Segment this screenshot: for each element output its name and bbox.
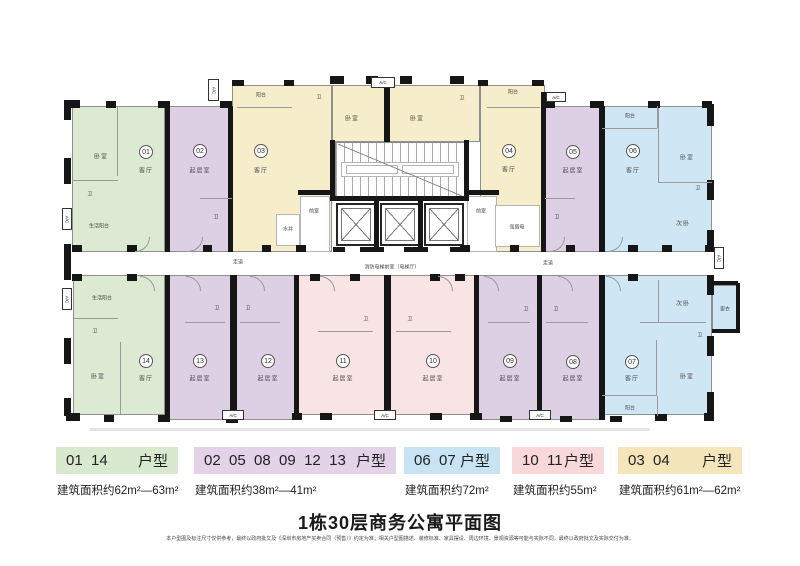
wall-segment bbox=[707, 275, 714, 295]
elevator-x-mark bbox=[341, 208, 371, 241]
room-label: 生活阳台 bbox=[89, 223, 109, 230]
wall-segment bbox=[736, 283, 740, 333]
ac-platform-label: A/C bbox=[222, 410, 244, 420]
room-label: 客厅 bbox=[139, 166, 153, 175]
legend-pill: 02 05 08 09 12 13 户型 bbox=[194, 447, 396, 474]
wall-segment bbox=[532, 80, 544, 86]
wall-segment bbox=[350, 274, 360, 281]
room-label: 次卧 bbox=[676, 219, 690, 228]
room-label: 卧室 bbox=[91, 372, 105, 381]
legend-area-text: 建筑面积约61m²—62m² bbox=[618, 482, 742, 498]
room-label: 卫 bbox=[316, 94, 321, 101]
legend-pill: 10 11 户型 bbox=[512, 447, 604, 474]
room-label: 卫 bbox=[213, 214, 218, 221]
wall-segment bbox=[232, 80, 244, 86]
partition-line bbox=[72, 180, 118, 181]
legend-unit-numbers: 01 14 bbox=[66, 452, 108, 469]
room-label: 卫 bbox=[363, 316, 368, 323]
wall-segment bbox=[66, 413, 80, 421]
ac-text: A/C bbox=[381, 413, 389, 418]
wall-segment bbox=[127, 274, 137, 281]
ac-platform-label: A/C bbox=[546, 92, 566, 102]
partition-line bbox=[185, 322, 225, 323]
room-label: 起居室 bbox=[562, 374, 583, 383]
wall-segment bbox=[384, 275, 391, 415]
legend-unit-numbers: 02 05 08 09 12 13 bbox=[204, 452, 346, 469]
room-label: 起居室 bbox=[422, 374, 443, 383]
room-label: 走道 bbox=[233, 259, 243, 266]
unit-number-09: 09 bbox=[503, 354, 517, 368]
partition-line bbox=[656, 340, 657, 395]
ac-text: A/C bbox=[716, 254, 721, 262]
partition-line bbox=[545, 198, 575, 199]
wall-segment bbox=[510, 245, 519, 252]
room-label: 卫 bbox=[554, 214, 559, 221]
wall-segment bbox=[418, 201, 423, 247]
wall-segment bbox=[465, 190, 499, 195]
room-label: 卫 bbox=[695, 185, 700, 192]
room-label: 强弱电 bbox=[509, 224, 524, 231]
wall-segment bbox=[404, 247, 428, 252]
ac-platform-label: A/C bbox=[371, 77, 395, 88]
ac-text: A/C bbox=[64, 215, 69, 223]
ac-platform-label: A/C bbox=[714, 247, 724, 269]
partition-line bbox=[120, 342, 121, 414]
legend-unit-numbers: 10 11 bbox=[522, 452, 563, 469]
wall-segment bbox=[707, 104, 714, 126]
legend-item-02-05-08-09-12-13: 02 05 08 09 12 13 户型 建筑面积约38m²—41m² bbox=[194, 447, 396, 498]
wall-segment bbox=[165, 275, 170, 420]
wall-segment bbox=[704, 413, 714, 421]
wall-segment bbox=[545, 101, 555, 108]
wall-segment bbox=[590, 101, 604, 108]
partition-line bbox=[546, 322, 588, 323]
unit-number-04: 04 bbox=[502, 144, 516, 158]
wall-segment bbox=[712, 281, 738, 285]
legend-unit-numbers: 03 04 bbox=[628, 452, 670, 469]
unit-number-08: 08 bbox=[566, 355, 580, 369]
partition-line bbox=[602, 395, 657, 396]
wall-segment bbox=[320, 413, 332, 420]
wall-segment bbox=[64, 338, 71, 364]
unit-number-13: 13 bbox=[193, 354, 207, 368]
partition-line bbox=[658, 182, 712, 183]
wall-segment bbox=[292, 413, 302, 420]
legend-type-label: 户型 bbox=[356, 450, 386, 471]
wall-segment bbox=[400, 76, 412, 84]
wall-segment bbox=[294, 275, 299, 415]
wall-segment bbox=[610, 416, 622, 422]
wall-segment bbox=[628, 245, 638, 252]
wall-segment bbox=[230, 275, 237, 420]
legend-pill: 06 07 户型 bbox=[404, 447, 500, 474]
unit-05 bbox=[545, 106, 602, 252]
legend-item-10-11: 10 11 户型 建筑面积约55m² bbox=[512, 447, 604, 498]
wall-segment bbox=[72, 245, 82, 252]
unit-number-06: 06 bbox=[626, 144, 640, 158]
partition-line bbox=[240, 322, 280, 323]
wall-segment bbox=[165, 106, 170, 252]
partition-line bbox=[318, 331, 373, 332]
elevator-x-mark bbox=[429, 208, 459, 241]
wall-segment bbox=[460, 245, 470, 252]
unit-09 bbox=[478, 275, 540, 420]
utility-room bbox=[467, 196, 497, 252]
wall-segment bbox=[430, 413, 442, 420]
wall-segment bbox=[541, 92, 546, 252]
ac-platform-label: A/C bbox=[62, 208, 72, 230]
ac-text: A/C bbox=[64, 295, 69, 303]
unit-number-14: 14 bbox=[139, 354, 153, 368]
room-label: 卫 bbox=[214, 305, 219, 312]
partition-line bbox=[487, 107, 540, 108]
unit-11 bbox=[298, 275, 388, 415]
legend-type-label: 户型 bbox=[702, 450, 732, 471]
ac-text: A/C bbox=[379, 80, 387, 85]
room-label: 起居室 bbox=[562, 166, 583, 175]
wall-segment bbox=[72, 274, 82, 281]
room-label: 阳台 bbox=[508, 89, 518, 96]
floor-plan: A/CA/CA/CA/CA/CA/CA/CA/CA/C卧室客厅卫生活阳台起居室卫… bbox=[0, 0, 800, 440]
unit-12 bbox=[233, 275, 298, 420]
unit-07 bbox=[602, 275, 712, 415]
utility-room bbox=[300, 196, 330, 252]
room-label: 水井 bbox=[283, 226, 293, 233]
room-label: 客厅 bbox=[254, 166, 268, 175]
unit-number-10: 10 bbox=[426, 354, 440, 368]
wall-segment bbox=[450, 76, 464, 84]
wall-segment bbox=[707, 336, 714, 356]
unit-number-02: 02 bbox=[193, 144, 207, 158]
room-label: 卧室 bbox=[94, 152, 108, 161]
room-label: 起居室 bbox=[257, 374, 278, 383]
room-label: 起居室 bbox=[189, 166, 210, 175]
room-label: 客厅 bbox=[625, 374, 639, 383]
wall-segment bbox=[705, 245, 714, 252]
unit-08 bbox=[540, 275, 602, 420]
legend-unit-numbers: 06 07 bbox=[414, 452, 456, 469]
wall-segment bbox=[662, 245, 672, 252]
unit-13 bbox=[165, 275, 233, 420]
wall-segment bbox=[333, 247, 345, 252]
room-label: 起居室 bbox=[332, 374, 353, 383]
ac-text: A/C bbox=[211, 86, 216, 94]
wall-segment bbox=[64, 244, 71, 280]
legend-pill: 01 14 户型 bbox=[56, 447, 178, 474]
partition-line bbox=[396, 331, 451, 332]
partition-line bbox=[117, 106, 118, 176]
room-label: 卫 bbox=[459, 95, 464, 102]
room-label: 卫 bbox=[697, 332, 702, 339]
room-label: 次卧 bbox=[676, 299, 690, 308]
legend-item-06-07: 06 07 户型 建筑面积约72m² bbox=[404, 447, 500, 498]
room-label: 生活阳台 bbox=[92, 295, 112, 302]
partition-line bbox=[640, 322, 706, 323]
room-label: 前室 bbox=[476, 208, 486, 215]
wall-segment bbox=[566, 245, 575, 252]
room-label: 阳台 bbox=[625, 405, 635, 412]
partition-line bbox=[488, 322, 530, 323]
unit-number-12: 12 bbox=[261, 354, 275, 368]
wall-segment bbox=[474, 275, 479, 415]
room-label: 更衣 bbox=[720, 306, 730, 313]
wall-segment bbox=[158, 415, 170, 422]
room-label: 卫 bbox=[523, 306, 528, 313]
unit-number-07: 07 bbox=[625, 355, 639, 369]
room-label: 卧室 bbox=[410, 114, 424, 123]
room-label: 卧室 bbox=[345, 114, 359, 123]
room-label: 卫 bbox=[407, 316, 412, 323]
ground-shadow-line bbox=[90, 428, 650, 431]
wall-segment bbox=[104, 415, 114, 422]
legend-type-label: 户型 bbox=[564, 450, 594, 471]
ac-platform-label: A/C bbox=[374, 410, 396, 420]
elevator-x-mark bbox=[385, 208, 415, 241]
wall-segment bbox=[470, 413, 482, 420]
wall-segment bbox=[599, 275, 605, 420]
wall-segment bbox=[707, 392, 714, 415]
room-label: 客厅 bbox=[502, 165, 516, 174]
wall-segment bbox=[648, 101, 660, 108]
room-label: 卧室 bbox=[680, 372, 694, 381]
unit-14 bbox=[73, 275, 165, 415]
wall-segment bbox=[64, 100, 71, 120]
legend-area-text: 建筑面积约38m²—41m² bbox=[194, 482, 396, 498]
wall-segment bbox=[628, 274, 638, 281]
room-label: 起居室 bbox=[499, 374, 520, 383]
room-label: 起居室 bbox=[189, 374, 210, 383]
room-label: 卫 bbox=[553, 306, 558, 313]
room-label: 客厅 bbox=[139, 374, 153, 383]
room-label: 消防电梯前室（电梯厅） bbox=[364, 264, 419, 271]
legend-type-label: 户型 bbox=[460, 450, 490, 471]
partition-line bbox=[658, 108, 659, 182]
wall-segment bbox=[560, 416, 572, 422]
floorplan-page: A/CA/CA/CA/CA/CA/CA/CA/CA/C卧室客厅卫生活阳台起居室卫… bbox=[0, 0, 800, 566]
partition-line bbox=[200, 198, 232, 199]
wall-segment bbox=[374, 201, 379, 247]
room-label: 卧室 bbox=[680, 153, 694, 162]
disclaimer-text: 本户型图及标注尺寸仅供参考，最终以政府批文及《深圳市房地产买卖合同（预售）》约定… bbox=[0, 535, 800, 542]
unit-number-05: 05 bbox=[566, 145, 580, 159]
wall-segment bbox=[500, 416, 512, 422]
wall-segment bbox=[158, 101, 170, 108]
room-label: 卫 bbox=[92, 328, 97, 335]
wall-segment bbox=[478, 80, 488, 86]
ac-text: A/C bbox=[229, 413, 237, 418]
wall-segment bbox=[228, 106, 233, 252]
ac-platform-label: A/C bbox=[208, 79, 219, 101]
wall-segment bbox=[330, 76, 344, 84]
ac-platform-label: A/C bbox=[529, 410, 551, 420]
room-label: 前室 bbox=[309, 208, 319, 215]
partition-line bbox=[657, 396, 658, 416]
legend-area-text: 建筑面积约62m²—63m² bbox=[56, 482, 178, 498]
wall-segment bbox=[262, 245, 271, 252]
page-title: 1栋30层商务公寓平面图 bbox=[0, 509, 800, 535]
legend-item-01-14: 01 14 户型 建筑面积约62m²—63m² bbox=[56, 447, 178, 498]
wall-segment bbox=[712, 329, 738, 333]
wall-segment bbox=[310, 274, 320, 281]
legend-area-text: 建筑面积约55m² bbox=[512, 482, 604, 498]
stair-direction-line bbox=[338, 144, 462, 196]
wall-segment bbox=[284, 80, 294, 86]
wall-segment bbox=[296, 245, 306, 252]
wall-segment bbox=[220, 101, 232, 108]
unit-number-01: 01 bbox=[139, 145, 153, 159]
unit-01 bbox=[72, 106, 165, 252]
wall-segment bbox=[298, 190, 332, 195]
room-label: 卫 bbox=[87, 191, 92, 198]
wall-segment bbox=[203, 245, 212, 252]
wall-segment bbox=[707, 180, 714, 200]
room-label: 卫 bbox=[245, 305, 250, 312]
unit-10 bbox=[388, 275, 478, 415]
unit-number-11: 11 bbox=[336, 354, 350, 368]
partition-line bbox=[73, 318, 118, 319]
unit-02 bbox=[165, 106, 232, 252]
wall-segment bbox=[537, 275, 542, 420]
legend-area-text: 建筑面积约72m² bbox=[404, 482, 500, 498]
ac-text: A/C bbox=[536, 413, 544, 418]
room-label: 阳台 bbox=[625, 113, 635, 120]
room-label: 阳台 bbox=[256, 92, 266, 99]
legend-pill: 03 04 户型 bbox=[618, 447, 742, 474]
ac-text: A/C bbox=[552, 95, 560, 100]
legend-type-label: 户型 bbox=[138, 450, 168, 471]
room-label: 走道 bbox=[543, 260, 553, 267]
wall-segment bbox=[330, 196, 469, 201]
room-label: 客厅 bbox=[626, 166, 640, 175]
wall-segment bbox=[360, 247, 384, 252]
partition-line bbox=[237, 107, 292, 108]
wall-segment bbox=[106, 101, 116, 108]
unit-number-03: 03 bbox=[254, 144, 268, 158]
wall-segment bbox=[455, 274, 465, 281]
wall-segment bbox=[64, 158, 71, 184]
partition-line bbox=[658, 280, 659, 322]
legend-item-03-04: 03 04 户型 建筑面积约61m²—62m² bbox=[618, 447, 742, 498]
partition-line bbox=[602, 128, 657, 129]
ac-platform-label: A/C bbox=[62, 288, 72, 310]
wall-segment bbox=[384, 83, 390, 142]
